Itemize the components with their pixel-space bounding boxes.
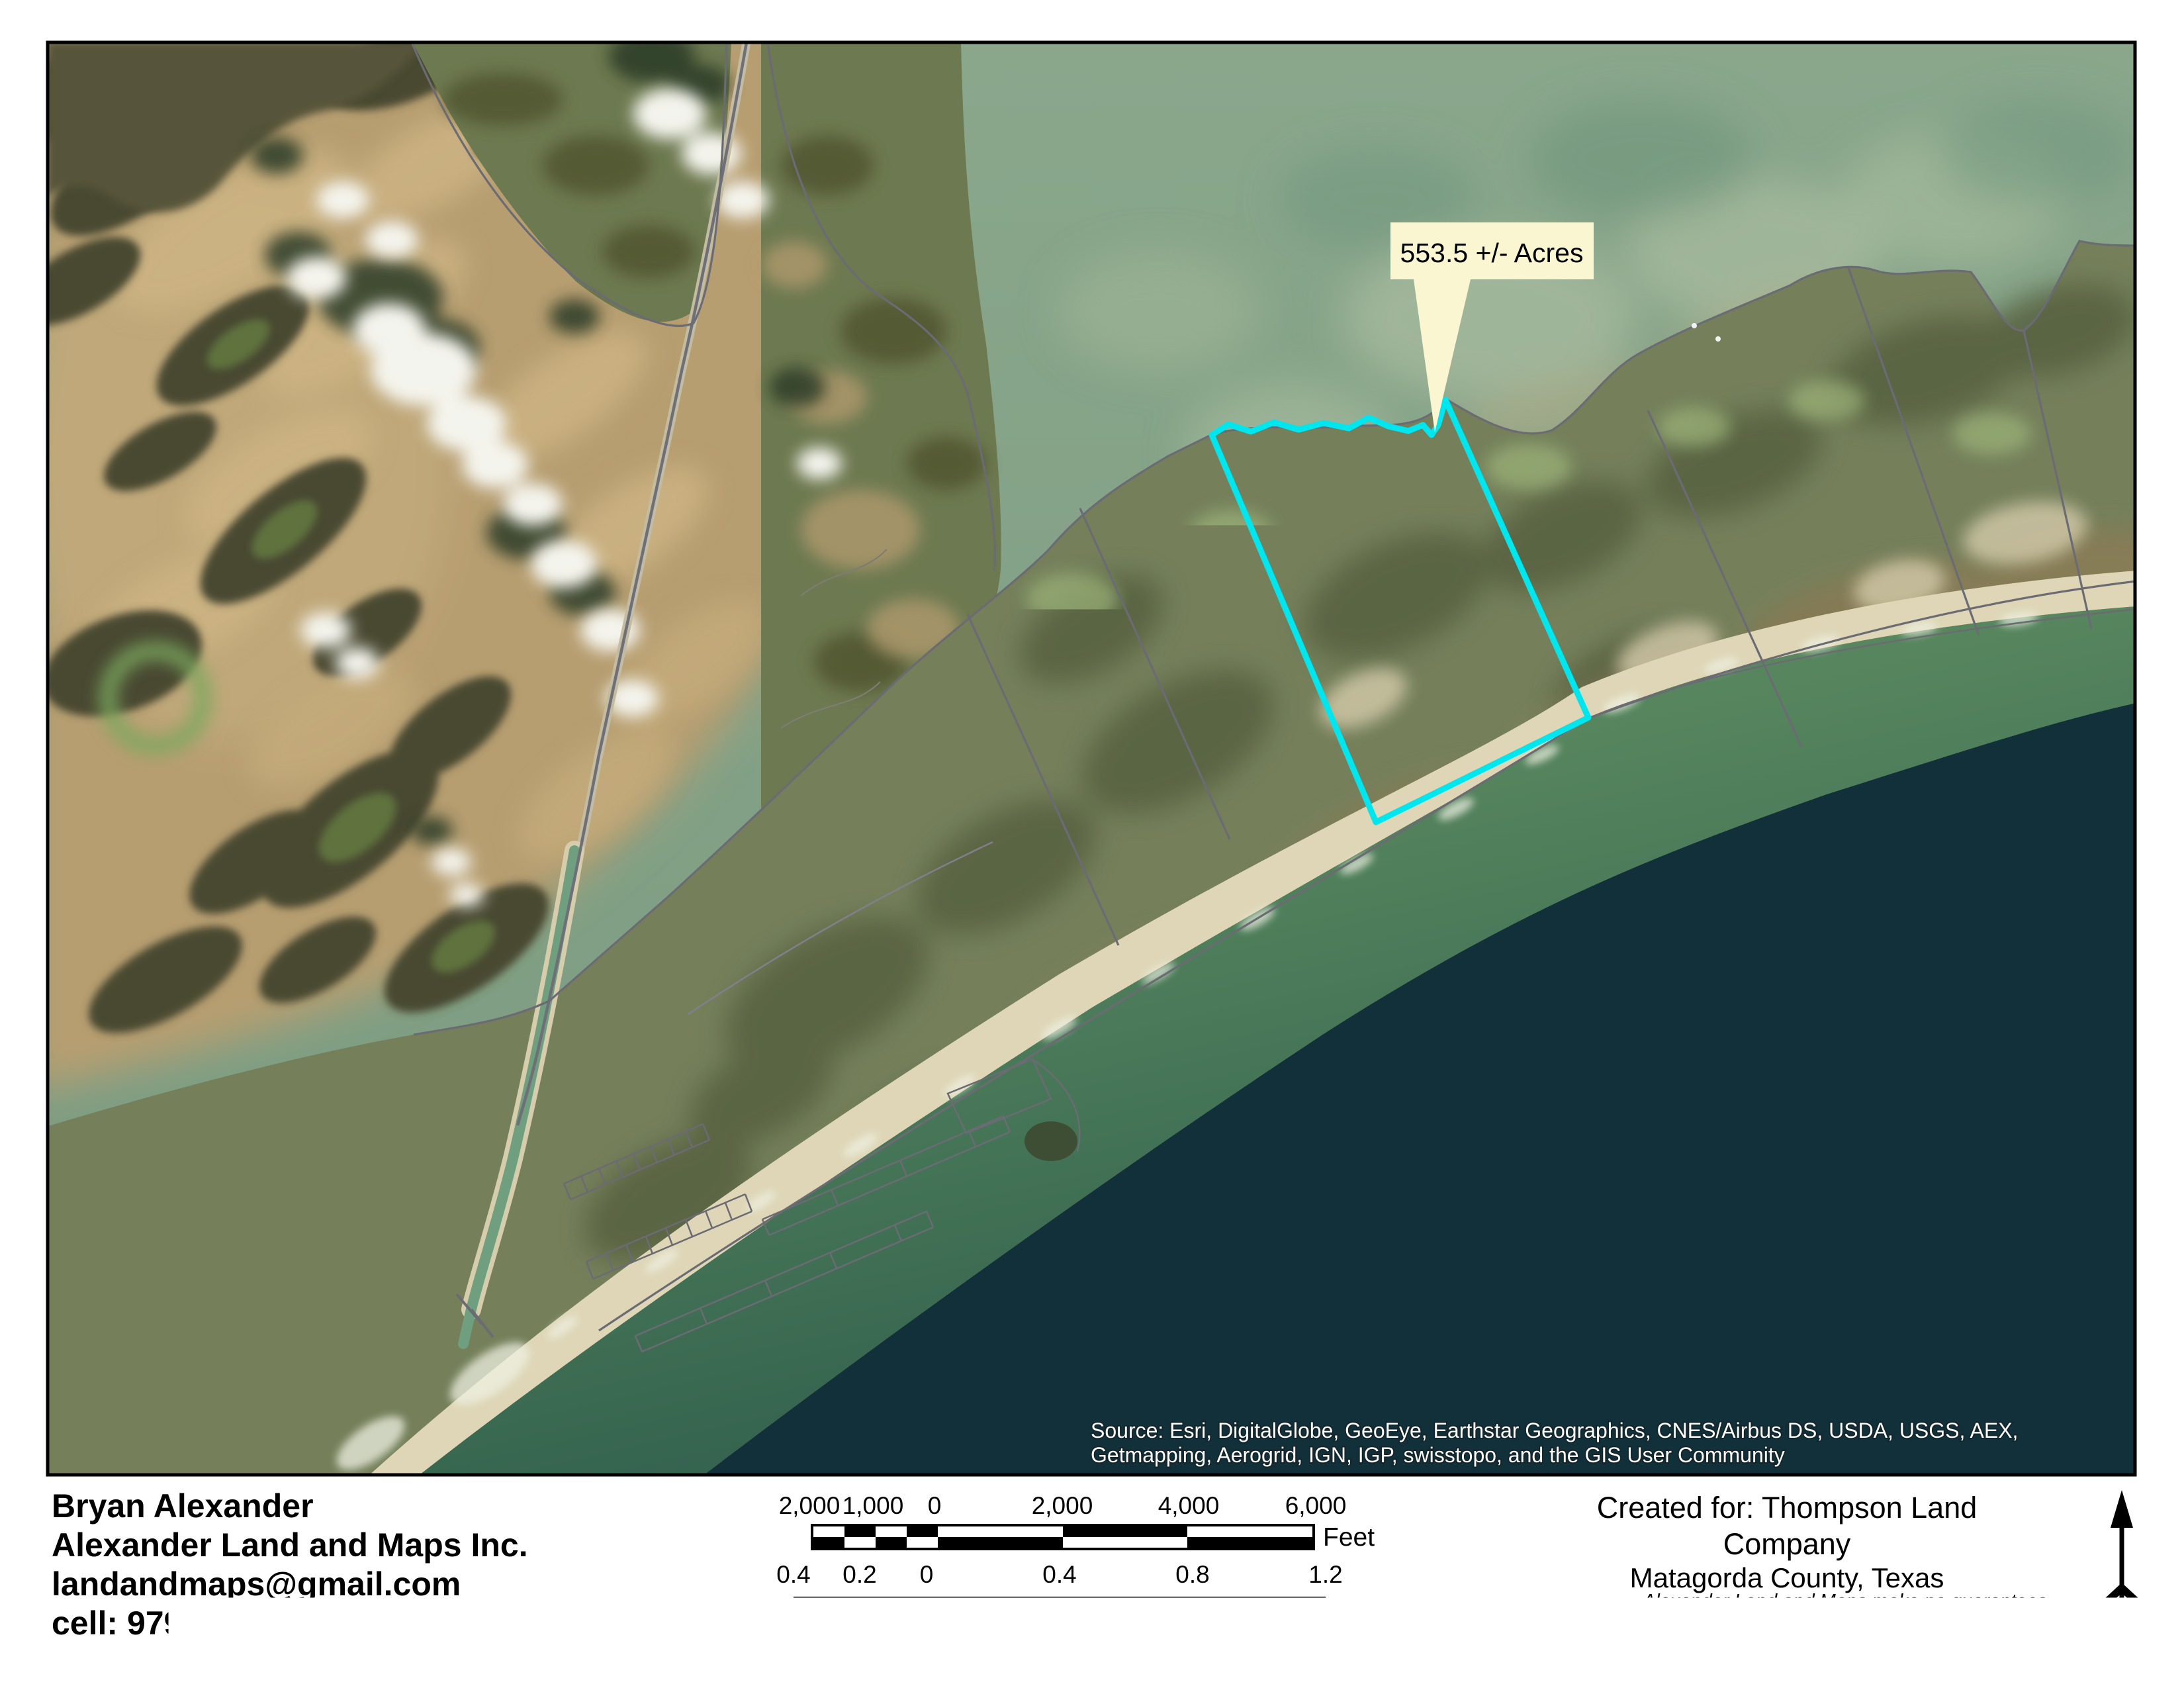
scale-cell — [796, 1599, 829, 1620]
scale-cell — [938, 1526, 1063, 1548]
miles-unit-label: Miles — [1335, 1597, 1395, 1624]
created-for-line: Created for: Thompson Land Company — [1542, 1489, 2032, 1562]
scale-cell — [844, 1526, 876, 1548]
scale-bar-feet — [811, 1524, 1315, 1550]
feet-tick-label: 6,000 — [1269, 1492, 1362, 1520]
disclaimer-line: to the accuracy of this document. — [1643, 1611, 2047, 1631]
email-address: landandmaps@gmail.com — [52, 1565, 528, 1604]
pond — [1024, 1121, 1077, 1161]
scale-cell — [1191, 1599, 1323, 1620]
scale-cell — [876, 1526, 907, 1548]
disclaimer-line: Alexander Land and Maps make no guarante… — [1643, 1591, 2047, 1611]
map-date: 11/30/2018 — [434, 1619, 574, 1652]
scale-cell — [1063, 1526, 1188, 1548]
feet-tick-label: 2,000 — [1016, 1492, 1109, 1520]
map-canvas: 553.5 +/- Acres Source: Esri, DigitalGlo… — [0, 0, 2184, 1688]
scale-bar-miles — [794, 1597, 1326, 1623]
callout-label: 553.5 +/- Acres — [1400, 238, 1584, 268]
feet-unit-label: Feet — [1323, 1524, 1375, 1551]
county-line: Matagorda County, Texas — [1542, 1562, 2032, 1593]
source-credit-line1: Source: Esri, DigitalGlobe, GeoEye, Eart… — [1091, 1419, 2018, 1442]
source-credit-line2: Getmapping, Aerogrid, IGN, IGP, swisstop… — [1091, 1443, 1785, 1467]
miles-tick-label: 0 — [880, 1561, 973, 1589]
scale-cell — [862, 1599, 895, 1620]
author-name: Bryan Alexander — [52, 1487, 528, 1526]
scale-cell — [1187, 1526, 1312, 1548]
scale-cell — [1060, 1599, 1191, 1620]
miles-tick-label: 1.2 — [1279, 1561, 1372, 1589]
miles-tick-label: 0.4 — [1013, 1561, 1106, 1589]
disclaimer-line: All data must be verified by the user. — [1643, 1631, 2047, 1651]
map-document-page: { "map": { "callout": { "label": "553.5 … — [0, 0, 2184, 1688]
scale-cell — [907, 1526, 938, 1548]
scale-cell — [813, 1526, 844, 1548]
feet-tick-label: 0 — [888, 1492, 981, 1520]
scale-cell — [895, 1599, 928, 1620]
feet-tick-label: 4,000 — [1142, 1492, 1235, 1520]
company-name: Alexander Land and Maps Inc. — [52, 1526, 528, 1565]
north-arrow-icon — [2102, 1487, 2142, 1652]
scale-cell — [829, 1599, 862, 1620]
miles-tick-label: 0.8 — [1146, 1561, 1239, 1589]
scale-cell — [928, 1599, 1060, 1620]
disclaimer-block: Alexander Land and Maps make no guarante… — [1643, 1591, 2047, 1651]
